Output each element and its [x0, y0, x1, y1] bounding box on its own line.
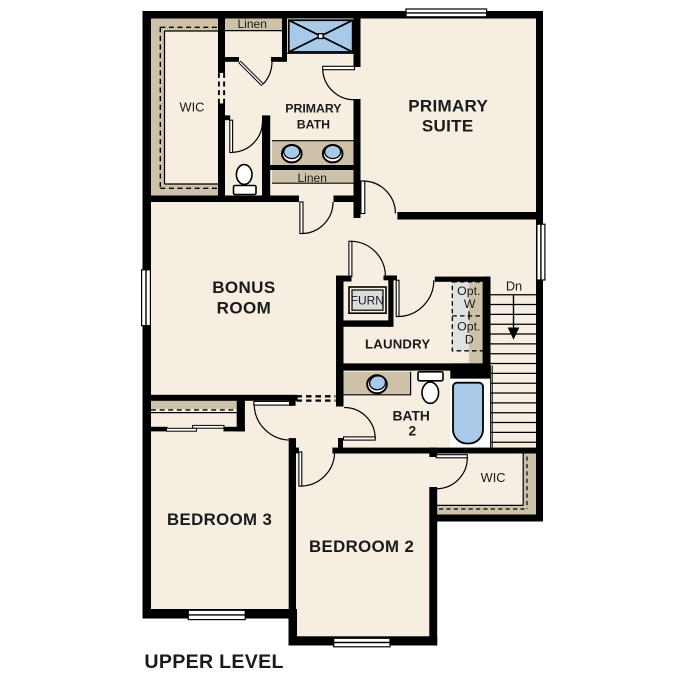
svg-text:WIC: WIC: [180, 99, 205, 114]
svg-text:WIC: WIC: [481, 470, 506, 485]
svg-text:BATH: BATH: [297, 118, 330, 132]
svg-text:BEDROOM 2: BEDROOM 2: [309, 537, 414, 556]
svg-text:ROOM: ROOM: [217, 298, 271, 317]
svg-text:BONUS: BONUS: [212, 278, 275, 297]
svg-text:2: 2: [409, 424, 417, 439]
svg-text:Linen: Linen: [238, 17, 267, 31]
svg-text:BATH: BATH: [393, 409, 430, 424]
svg-text:FURN: FURN: [351, 294, 384, 308]
svg-text:SUITE: SUITE: [422, 117, 474, 136]
svg-text:Opt.: Opt.: [457, 284, 480, 298]
svg-text:LAUNDRY: LAUNDRY: [365, 336, 430, 351]
svg-text:Linen: Linen: [298, 171, 327, 185]
svg-text:BEDROOM 3: BEDROOM 3: [167, 510, 272, 529]
svg-text:Dn: Dn: [506, 278, 522, 293]
svg-text:PRIMARY: PRIMARY: [285, 102, 341, 116]
svg-text:Opt.: Opt.: [457, 319, 480, 333]
svg-text:UPPER LEVEL: UPPER LEVEL: [144, 651, 283, 673]
svg-text:D: D: [465, 333, 474, 347]
svg-text:PRIMARY: PRIMARY: [408, 97, 488, 116]
svg-text:W: W: [464, 297, 476, 311]
